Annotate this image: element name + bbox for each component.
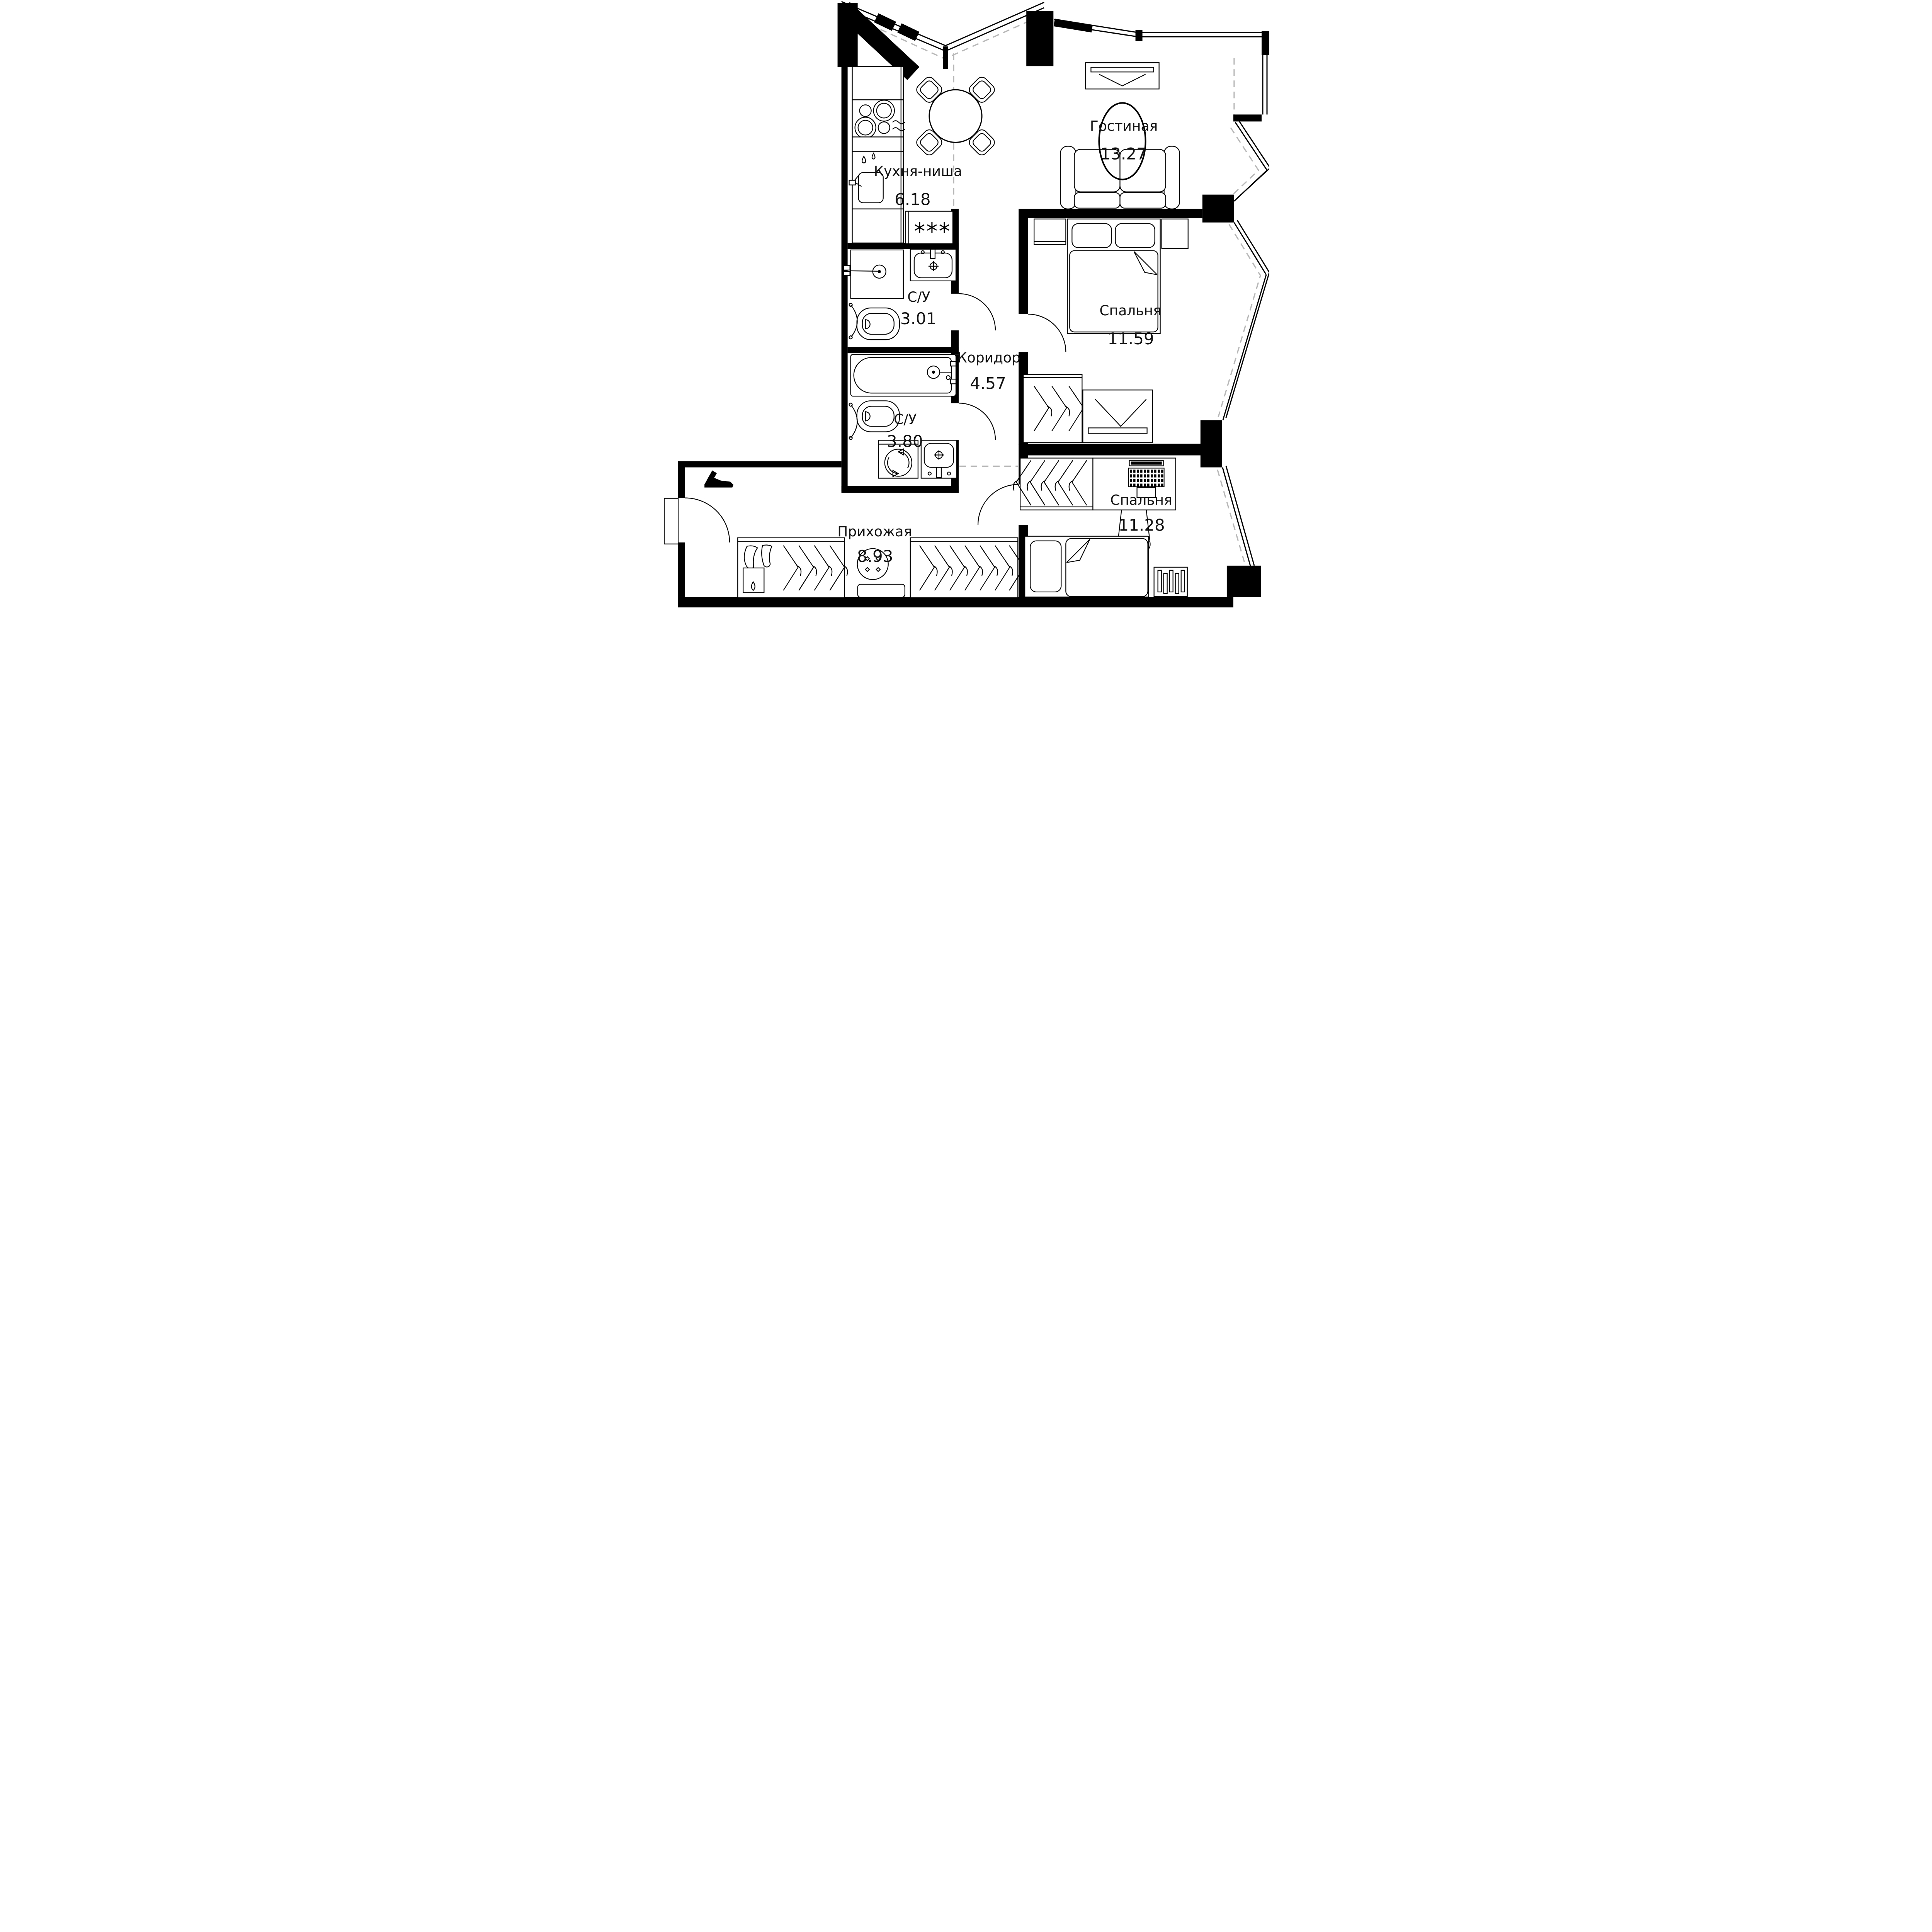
living-room: Гостиная 13.27 (1060, 63, 1179, 209)
entrance-threshold (664, 498, 678, 544)
room-area-kitchen: 6.18 (895, 190, 931, 209)
fridge (906, 211, 953, 244)
door-arc-bedroom-1 (1028, 314, 1066, 352)
floor-plan: Гостиная 13.27 Кухня-ниша 6.18 Спальня 1… (663, 0, 1269, 607)
pillow (1115, 224, 1155, 248)
room-label-hallway: Прихожая (837, 524, 912, 540)
room-label-bedroom-1: Спальня (1099, 303, 1161, 319)
toilet (857, 308, 900, 340)
column-right-a (1202, 195, 1234, 223)
door-arc-entrance (685, 498, 730, 543)
toilet (857, 401, 900, 432)
laptop-icon (1129, 468, 1164, 487)
room-area-bedroom-2: 11.28 (1118, 516, 1165, 535)
shower (851, 250, 903, 299)
wardrobe-bedroom-1 (1023, 374, 1087, 442)
room-area-hallway: 8.93 (857, 547, 893, 566)
nightstand (1034, 219, 1066, 245)
dining-table (929, 90, 982, 142)
mattress (1066, 539, 1148, 597)
valley-tick (943, 46, 948, 69)
mattress (1070, 251, 1158, 332)
shoe-icon (704, 471, 733, 488)
hall-wardrobe-right (910, 538, 1027, 598)
single-bed (1025, 536, 1148, 597)
bath-sink (910, 249, 956, 281)
room-label-bath-2: С/У (894, 412, 917, 427)
pillow (1072, 224, 1111, 248)
towel-dryer-icon (851, 305, 857, 337)
radiator (1154, 567, 1187, 597)
room-label-bedroom-2: Спальня (1110, 493, 1172, 509)
wardrobe-bedroom-2 (1014, 458, 1093, 510)
bathroom-2: С/У 3.80 (849, 354, 957, 478)
wall-hall-top (678, 461, 842, 468)
towel-dryer-icon (851, 405, 857, 438)
room-area-corridor: 4.57 (970, 374, 1006, 393)
pillow (1030, 541, 1061, 592)
column-right-b (1201, 420, 1222, 467)
shoe-box (743, 568, 764, 593)
room-label-bath-1: С/У (907, 289, 930, 305)
bath-sink (921, 440, 957, 478)
corner-bottom-right (1227, 566, 1261, 597)
column-top-left (838, 3, 858, 67)
room-area-bath-1: 3.01 (900, 309, 937, 328)
room-label-living: Гостиная (1090, 118, 1158, 134)
room-label-corridor: Коридор (957, 350, 1020, 366)
wall-bedrooms-divider (1019, 444, 1201, 455)
wall-living-bedroom (1019, 209, 1202, 218)
bedroom-1: Спальня 11.59 (1023, 219, 1188, 443)
cabinet (852, 66, 903, 100)
column-top-middle (1026, 11, 1053, 66)
nightstand (1162, 219, 1188, 248)
room-area-bath-2: 3.80 (887, 432, 923, 451)
room-label-kitchen: Кухня-ниша (874, 164, 963, 180)
bathroom-1: С/У 3.01 (844, 249, 956, 340)
facade-top-wall-segments (838, 3, 1269, 73)
bathtub (851, 354, 956, 396)
wall-left (842, 12, 848, 492)
door-arc-bath-1 (959, 294, 995, 330)
room-area-living: 13.27 (1100, 145, 1146, 163)
bedroom-2: Спальня 11.28 (1014, 458, 1187, 597)
hall-wardrobe-left (738, 538, 847, 598)
wall-bottom (678, 597, 1233, 607)
dining-set (915, 75, 997, 157)
door-mat (858, 584, 905, 597)
tv-stand-bedroom-1 (1083, 390, 1152, 442)
door-arc-bath-2 (959, 403, 995, 440)
floor-plan-page: Гостиная 13.27 Кухня-ниша 6.18 Спальня 1… (663, 0, 1269, 607)
tv-console (1085, 63, 1159, 89)
door-arc-bedroom-2 (978, 485, 1019, 525)
room-area-bedroom-1: 11.59 (1107, 329, 1154, 348)
facade-right-window (1201, 39, 1269, 597)
